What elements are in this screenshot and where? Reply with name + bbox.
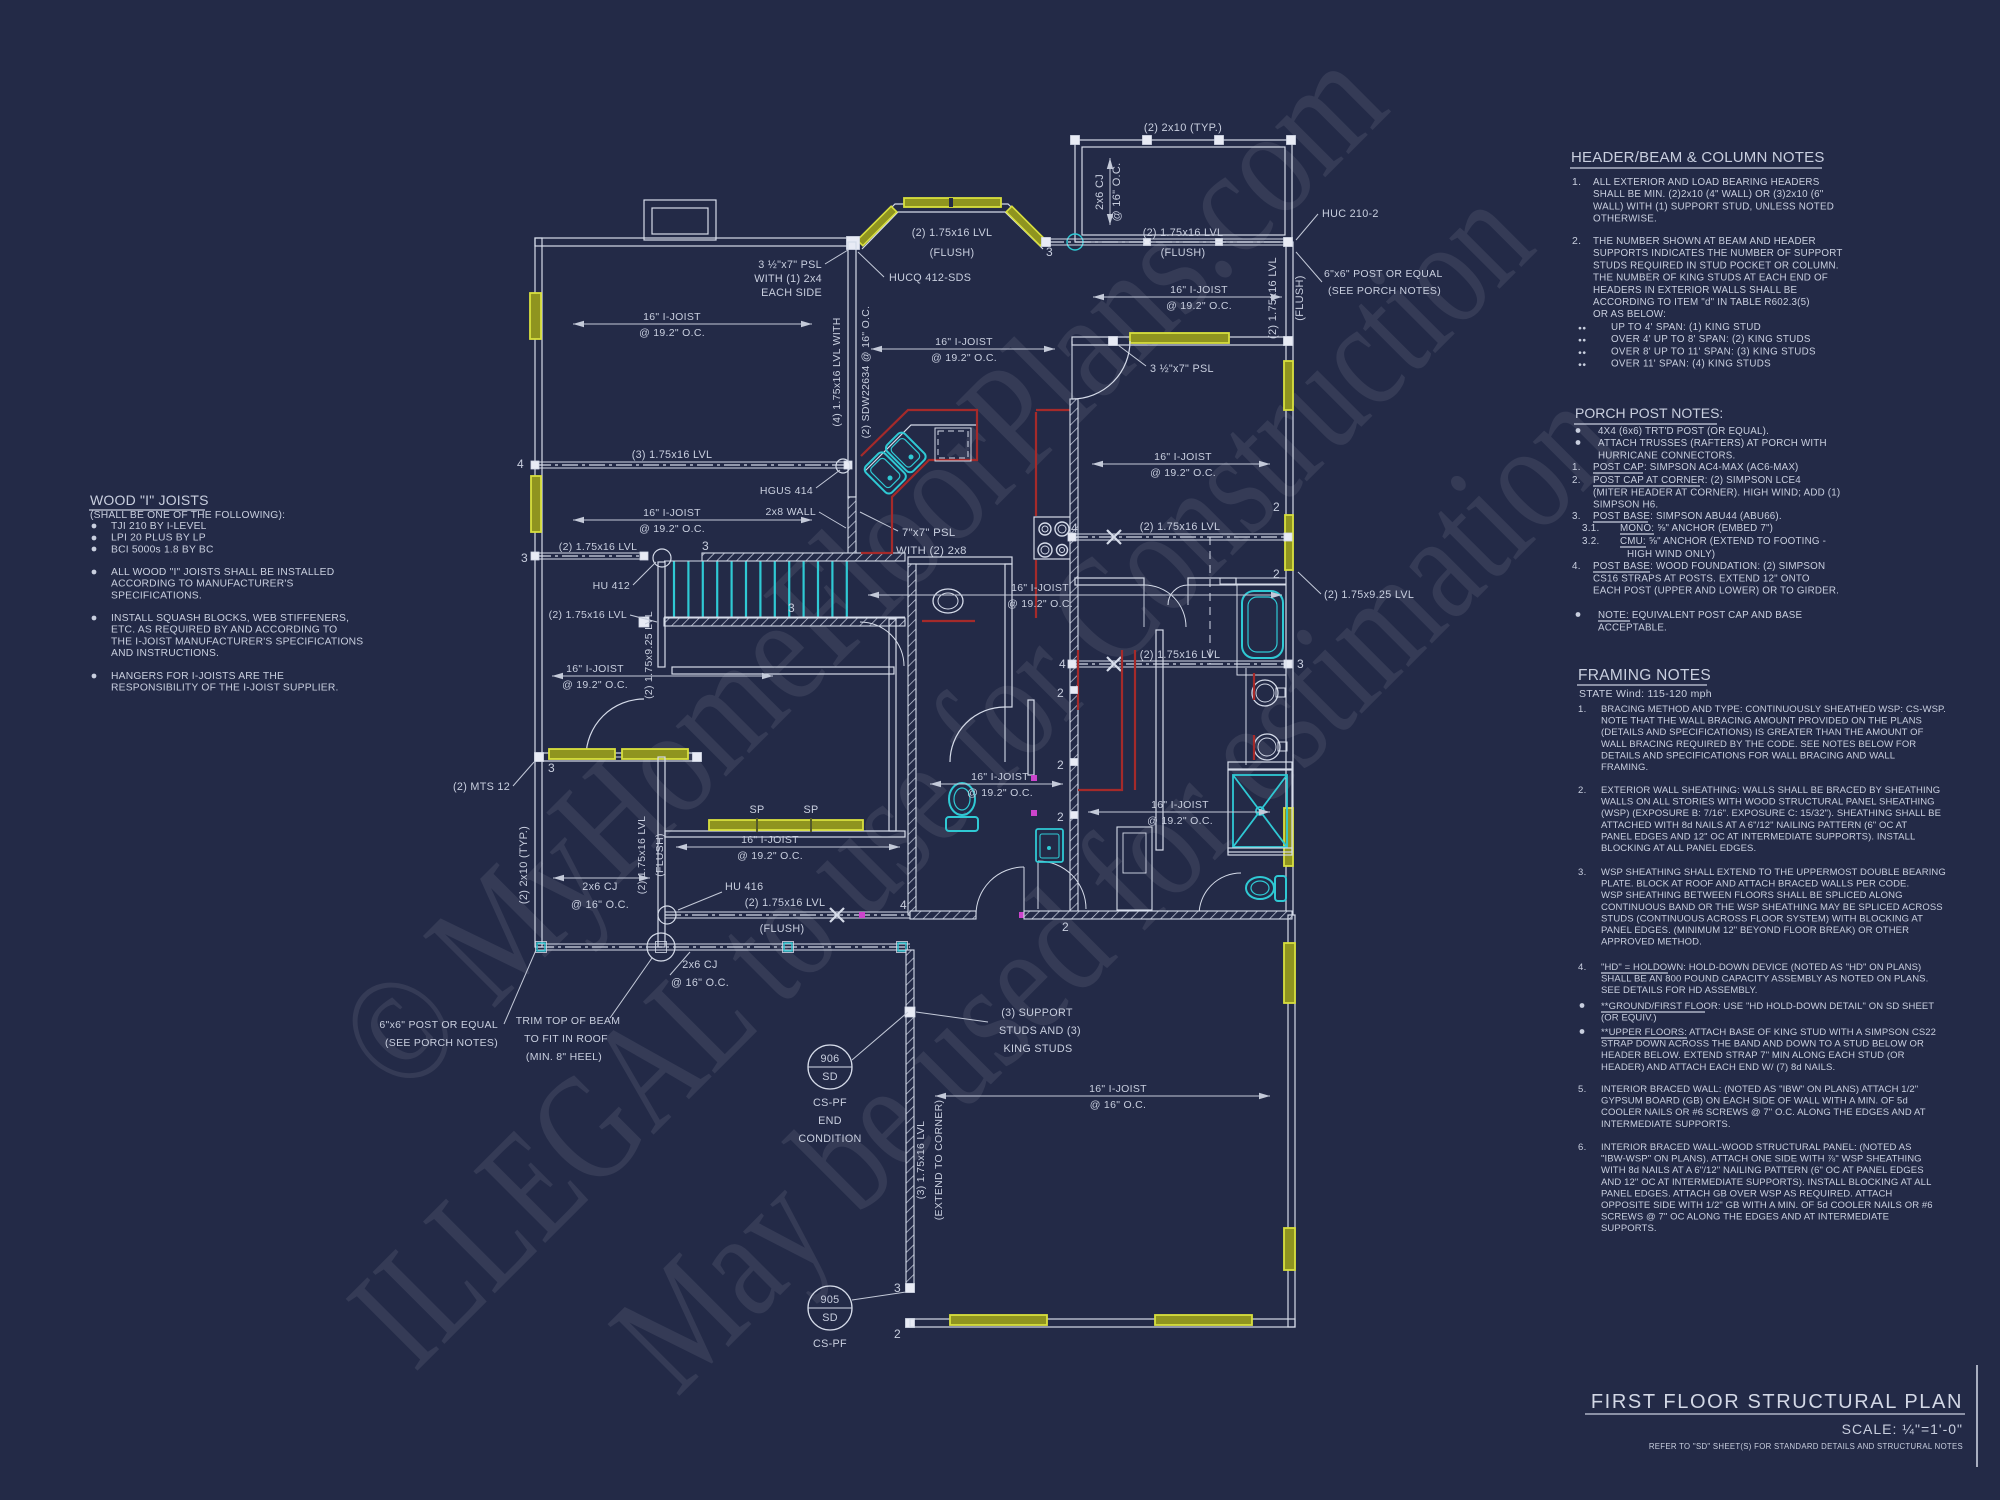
svg-text:3.2.: 3.2. — [1582, 536, 1600, 547]
svg-text:(3) 1.75x16 LVL: (3) 1.75x16 LVL — [632, 449, 713, 461]
svg-text:BRACING METHOD AND TYPE: CONTI: BRACING METHOD AND TYPE: CONTINUOUSLY SH… — [1601, 704, 1946, 715]
svg-text:HU 416: HU 416 — [725, 881, 763, 893]
svg-text:ATTACHED WITH 8d NAILS AT A 6": ATTACHED WITH 8d NAILS AT A 6"/12" NAILI… — [1601, 820, 1907, 831]
svg-text:HEADERS IN EXTERIOR WALLS SHAL: HEADERS IN EXTERIOR WALLS SHALL BE — [1593, 285, 1798, 296]
svg-text:3: 3 — [702, 539, 709, 553]
svg-text:(2) 1.75x16 LVL: (2) 1.75x16 LVL — [745, 897, 826, 909]
svg-text:2.: 2. — [1572, 235, 1581, 247]
svg-text:SP: SP — [749, 804, 764, 816]
svg-text:OTHERWISE.: OTHERWISE. — [1593, 214, 1657, 225]
svg-text:WSP SHEATHING SHALL EXTEND TO: WSP SHEATHING SHALL EXTEND TO THE UPPERM… — [1601, 867, 1946, 878]
svg-text:(3) 1.75x16 LVL: (3) 1.75x16 LVL — [915, 1121, 927, 1199]
svg-text:UP TO 4' SPAN: (1) KING STUD: UP TO 4' SPAN: (1) KING STUD — [1611, 322, 1761, 333]
svg-text:PANEL EDGES. (MINIMUM 12" BEYO: PANEL EDGES. (MINIMUM 12" BEYOND FLOOR B… — [1601, 925, 1909, 936]
svg-text:16" I-JOIST: 16" I-JOIST — [643, 507, 701, 519]
svg-text:TO FIT IN ROOF: TO FIT IN ROOF — [524, 1033, 608, 1045]
svg-text:OVER 11' SPAN: (4) KING STUDS: OVER 11' SPAN: (4) KING STUDS — [1611, 359, 1771, 370]
svg-text:HUC 210-2: HUC 210-2 — [1322, 208, 1379, 220]
svg-text:1.: 1. — [1572, 176, 1581, 188]
svg-text:(DETAILS AND SPECIFICATIONS) I: (DETAILS AND SPECIFICATIONS) IS GREATER … — [1601, 727, 1924, 738]
svg-text:4: 4 — [900, 898, 907, 912]
svg-text:16" I-JOIST: 16" I-JOIST — [1154, 451, 1212, 463]
svg-text:HURRICANE CONNECTORS.: HURRICANE CONNECTORS. — [1598, 450, 1735, 461]
svg-text:WALL) WITH (1) SUPPORT STUD, U: WALL) WITH (1) SUPPORT STUD, UNLESS NOTE… — [1593, 201, 1834, 212]
svg-text:(FLUSH): (FLUSH) — [1294, 275, 1306, 321]
svg-text:ATTACH TRUSSES (RAFTERS) AT PO: ATTACH TRUSSES (RAFTERS) AT PORCH WITH — [1598, 438, 1827, 449]
svg-text:(MIN. 8" HEEL): (MIN. 8" HEEL) — [526, 1051, 602, 1063]
svg-text:(SEE PORCH NOTES): (SEE PORCH NOTES) — [1328, 285, 1441, 297]
svg-text:STUDS (CONTINUOUS ACROSS FLOOR: STUDS (CONTINUOUS ACROSS FLOOR SYSTEM) W… — [1601, 913, 1923, 924]
svg-text:2.: 2. — [1578, 785, 1587, 796]
svg-text:HEADER BELOW. EXTEND STRAP 7": HEADER BELOW. EXTEND STRAP 7" MIN ALONG … — [1601, 1050, 1905, 1061]
svg-text:(2) 1.75x9.25 LVL: (2) 1.75x9.25 LVL — [643, 611, 655, 699]
svg-text:(2) 1.75x16 LVL: (2) 1.75x16 LVL — [1143, 227, 1224, 239]
svg-text:PORCH POST NOTES:: PORCH POST NOTES: — [1575, 405, 1723, 421]
svg-text:905: 905 — [821, 1294, 840, 1306]
svg-text:CS-PF: CS-PF — [813, 1097, 847, 1109]
svg-text:SCALE: ¼"=1'-0": SCALE: ¼"=1'-0" — [1842, 1421, 1963, 1437]
svg-text:4: 4 — [1059, 657, 1066, 671]
svg-text:(WSP) (EXPOSURE B: 7/16". EXPO: (WSP) (EXPOSURE B: 7/16". EXPOSURE C: 15… — [1601, 808, 1941, 819]
svg-text:SP: SP — [803, 804, 818, 816]
svg-text:HUCQ 412-SDS: HUCQ 412-SDS — [889, 272, 971, 284]
svg-text:4: 4 — [1071, 521, 1078, 535]
svg-text:AND INSTRUCTIONS.: AND INSTRUCTIONS. — [111, 648, 219, 659]
svg-text:●●: ●● — [1578, 349, 1586, 356]
svg-text:@ 16" O.C.: @ 16" O.C. — [571, 899, 629, 911]
svg-text:THE I-JOIST MANUFACTURER'S SPE: THE I-JOIST MANUFACTURER'S SPECIFICATION… — [111, 636, 363, 647]
svg-text:**GROUND/FIRST FLOOR: USE "HD: **GROUND/FIRST FLOOR: USE "HD HOLD-DOWN … — [1601, 1001, 1934, 1012]
svg-text:BLOCKING AT ALL PANEL EDGES.: BLOCKING AT ALL PANEL EDGES. — [1601, 843, 1756, 854]
svg-text:7"x7" PSL: 7"x7" PSL — [902, 527, 955, 539]
svg-text:3.: 3. — [1572, 511, 1581, 522]
svg-text:SPECIFICATIONS.: SPECIFICATIONS. — [111, 590, 202, 601]
svg-text:HIGH WIND ONLY): HIGH WIND ONLY) — [1627, 549, 1715, 560]
svg-text:HU 412: HU 412 — [593, 580, 630, 592]
svg-text:4X4 (6x6) TRT'D POST (OR EQUAL: 4X4 (6x6) TRT'D POST (OR EQUAL). — [1598, 426, 1769, 437]
svg-text:@ 19.2" O.C.: @ 19.2" O.C. — [1166, 300, 1232, 312]
svg-text:CONTINUOUS BAND OR THE WSP SHE: CONTINUOUS BAND OR THE WSP SHEATHING MAY… — [1601, 902, 1943, 913]
svg-text:16" I-JOIST: 16" I-JOIST — [741, 834, 799, 846]
svg-text:@ 19.2" O.C.: @ 19.2" O.C. — [967, 787, 1033, 799]
svg-text:906: 906 — [821, 1053, 840, 1065]
svg-text:WITH 8d NAILS AT A 6"/12" NAIL: WITH 8d NAILS AT A 6"/12" NAILING PATTER… — [1601, 1165, 1924, 1176]
svg-text:CS16 STRAPS AT POSTS. EXTEND: CS16 STRAPS AT POSTS. EXTEND 12" ONTO — [1593, 573, 1810, 584]
svg-text:REFER TO "SD" SHEET(S) FOR STA: REFER TO "SD" SHEET(S) FOR STANDARD DETA… — [1649, 1442, 1963, 1451]
svg-text:(SHALL BE ONE OF THE FOLLOWING: (SHALL BE ONE OF THE FOLLOWING): — [90, 510, 285, 521]
svg-text:4.: 4. — [1578, 962, 1587, 973]
svg-text:MONO: ⅝" ANCHOR (EMBED 7"): MONO: ⅝" ANCHOR (EMBED 7") — [1620, 523, 1773, 534]
svg-text:@ 19.2" O.C.: @ 19.2" O.C. — [1007, 598, 1073, 610]
svg-text:2: 2 — [894, 1327, 901, 1341]
svg-text:CONDITION: CONDITION — [798, 1133, 861, 1145]
svg-text:2: 2 — [1273, 500, 1280, 514]
svg-text:3: 3 — [548, 761, 555, 775]
svg-text:@ 16" O.C.: @ 16" O.C. — [671, 977, 729, 989]
svg-text:2: 2 — [1062, 920, 1069, 934]
svg-text:SEE DETAILS FOR HD ASSEMBLY.: SEE DETAILS FOR HD ASSEMBLY. — [1601, 985, 1757, 996]
svg-text:16" I-JOIST: 16" I-JOIST — [643, 311, 701, 323]
svg-text:PANEL EDGES. ATTACH GB OVER WS: PANEL EDGES. ATTACH GB OVER WSP AS REQUI… — [1601, 1188, 1892, 1199]
svg-text:TRIM TOP OF BEAM: TRIM TOP OF BEAM — [516, 1015, 621, 1027]
svg-text:3.: 3. — [1578, 867, 1587, 878]
svg-text:2.: 2. — [1572, 475, 1581, 486]
svg-text:POST CAP: SIMPSON AC4-MAX (AC6: POST CAP: SIMPSON AC4-MAX (AC6-MAX) — [1593, 462, 1799, 473]
svg-text:6.: 6. — [1578, 1142, 1587, 1153]
svg-text:WSP SHEATHING BETWEEN FLOORS S: WSP SHEATHING BETWEEN FLOORS SHALL BE SP… — [1601, 890, 1903, 901]
svg-text:2x8 WALL: 2x8 WALL — [766, 506, 816, 518]
svg-text:THE NUMBER SHOWN AT BEAM AND H: THE NUMBER SHOWN AT BEAM AND HEADER — [1593, 236, 1816, 247]
svg-text:2x6 CJ: 2x6 CJ — [682, 959, 717, 971]
svg-text:WITH (2) 2x8: WITH (2) 2x8 — [896, 545, 967, 557]
svg-text:(2) 1.75x16 LVL: (2) 1.75x16 LVL — [912, 227, 993, 239]
svg-text:**UPPER FLOORS: ATTACH BASE OF: **UPPER FLOORS: ATTACH BASE OF KING STUD… — [1601, 1027, 1936, 1038]
svg-text:3: 3 — [521, 551, 528, 565]
svg-text:1.: 1. — [1572, 462, 1581, 473]
svg-text:STUDS REQUIRED IN STUD POCKET: STUDS REQUIRED IN STUD POCKET OR COLUMN. — [1593, 260, 1839, 271]
svg-text:(2) 2x10 (TYP.): (2) 2x10 (TYP.) — [1144, 122, 1222, 134]
svg-text:POST BASE: SIMPSON ABU44 (ABU6: POST BASE: SIMPSON ABU44 (ABU66). — [1593, 511, 1782, 522]
svg-text:BCI 5000s 1.8 BY BC: BCI 5000s 1.8 BY BC — [111, 544, 214, 555]
svg-text:STRAP DOWN ACROSS THE BAND AND: STRAP DOWN ACROSS THE BAND AND DOWN TO A… — [1601, 1039, 1924, 1050]
svg-text:(2) 1.75x9.25 LVL: (2) 1.75x9.25 LVL — [1324, 589, 1414, 601]
svg-text:APPROVED METHOD.: APPROVED METHOD. — [1601, 937, 1702, 948]
svg-text:LPI 20 PLUS BY LP: LPI 20 PLUS BY LP — [111, 533, 206, 544]
svg-text:●●: ●● — [1578, 337, 1586, 344]
svg-text:3 ½"x7" PSL: 3 ½"x7" PSL — [1150, 363, 1214, 375]
svg-text:SD: SD — [822, 1071, 838, 1083]
svg-text:KING STUDS: KING STUDS — [1004, 1043, 1073, 1055]
svg-text:PLATE. BLOCK AT ROOF AND ATTAC: PLATE. BLOCK AT ROOF AND ATTACH BRACED W… — [1601, 879, 1909, 890]
svg-text:SD: SD — [822, 1312, 838, 1324]
svg-text:4.: 4. — [1572, 561, 1581, 572]
svg-text:OVER 4' UP TO 8' SPAN: (2) KIN: OVER 4' UP TO 8' SPAN: (2) KING STUDS — [1611, 334, 1811, 345]
svg-text:OR AS BELOW:: OR AS BELOW: — [1593, 309, 1666, 320]
svg-text:@ 19.2" O.C.: @ 19.2" O.C. — [931, 352, 997, 364]
svg-text:POST BASE: WOOD FOUNDATION: (2: POST BASE: WOOD FOUNDATION: (2) SIMPSON — [1593, 561, 1825, 572]
svg-text:●●: ●● — [1578, 362, 1586, 369]
svg-text:EXTERIOR WALL SHEATHING: WALLS: EXTERIOR WALL SHEATHING: WALLS SHALL BE … — [1601, 785, 1940, 796]
svg-text:CS-PF: CS-PF — [813, 1338, 847, 1350]
svg-text:2x6 CJ: 2x6 CJ — [1094, 174, 1106, 210]
svg-text:CMU: ⅝" ANCHOR (EXTEND TO FOOT: CMU: ⅝" ANCHOR (EXTEND TO FOOTING - — [1620, 536, 1826, 547]
svg-text:END: END — [818, 1115, 842, 1127]
svg-text:(MITER HEADER AT CORNER). HIG: (MITER HEADER AT CORNER). HIGH WIND; ADD… — [1593, 487, 1840, 498]
svg-text:@ 19.2" O.C.: @ 19.2" O.C. — [639, 327, 705, 339]
svg-text:3: 3 — [1297, 657, 1304, 671]
svg-text:EACH POST (UPPER AND LOWER) OR: EACH POST (UPPER AND LOWER) OR TO GIRDER… — [1593, 586, 1839, 597]
svg-text:(2) 2x10 (TYP.): (2) 2x10 (TYP.) — [518, 826, 530, 904]
svg-text:(FLUSH): (FLUSH) — [930, 247, 975, 259]
svg-text:INTERIOR BRACED WALL-WOOD STRU: INTERIOR BRACED WALL-WOOD STRUCTURAL PAN… — [1601, 1142, 1912, 1153]
svg-text:@ 19.2" O.C.: @ 19.2" O.C. — [562, 679, 628, 691]
svg-text:INTERMEDIATE SUPPORTS.: INTERMEDIATE SUPPORTS. — [1601, 1119, 1731, 1130]
svg-text:HEADER/BEAM & COLUMN NOTES: HEADER/BEAM & COLUMN NOTES — [1571, 149, 1825, 166]
svg-text:(FLUSH): (FLUSH) — [1161, 247, 1206, 259]
svg-text:3.1.: 3.1. — [1582, 523, 1600, 534]
svg-text:"IBW-WSP" ON PLANS). ATTACH ON: "IBW-WSP" ON PLANS). ATTACH ONE SIDE WIT… — [1601, 1154, 1922, 1165]
svg-text:3: 3 — [788, 601, 795, 615]
svg-text:@ 16" O.C.: @ 16" O.C. — [1090, 1099, 1146, 1111]
svg-text:POST CAP AT CORNER: (2) SIMPSO: POST CAP AT CORNER: (2) SIMPSON LCE4 — [1593, 475, 1801, 486]
svg-text:5.: 5. — [1578, 1084, 1587, 1095]
svg-text:SHALL BE AN 800 POUND CAPACITY: SHALL BE AN 800 POUND CAPACITY ASSEMBLY … — [1601, 974, 1928, 985]
svg-text:16" I-JOIST: 16" I-JOIST — [566, 663, 624, 675]
svg-text:@ 19.2" O.C.: @ 19.2" O.C. — [1147, 815, 1213, 827]
svg-text:(3) SUPPORT: (3) SUPPORT — [1001, 1007, 1073, 1019]
svg-text:(4) 1.75x16 LVL WITH: (4) 1.75x16 LVL WITH — [831, 317, 843, 426]
svg-text:16" I-JOIST: 16" I-JOIST — [1170, 284, 1228, 296]
svg-text:THE NUMBER OF KING STUDS AT EA: THE NUMBER OF KING STUDS AT EACH END OF — [1593, 273, 1828, 284]
svg-text:RESPONSIBILITY OF THE I-JOIST: RESPONSIBILITY OF THE I-JOIST SUPPLIER. — [111, 683, 339, 694]
svg-text:FRAMING.: FRAMING. — [1601, 762, 1648, 773]
svg-text:(2) 1.75x16 LVL: (2) 1.75x16 LVL — [1140, 521, 1221, 533]
svg-text:(FLUSH): (FLUSH) — [760, 923, 805, 935]
svg-text:(2) 1.75x16 LVL: (2) 1.75x16 LVL — [636, 816, 648, 894]
svg-text:(SEE PORCH NOTES): (SEE PORCH NOTES) — [385, 1037, 498, 1049]
svg-text:PANEL EDGES AND 12" OC AT INTE: PANEL EDGES AND 12" OC AT INTERMEDIATE S… — [1601, 831, 1915, 842]
svg-text:(2) 1.75x16 LVL: (2) 1.75x16 LVL — [1140, 649, 1221, 661]
svg-text:3: 3 — [1046, 245, 1053, 259]
svg-text:EACH SIDE: EACH SIDE — [761, 287, 822, 299]
svg-text:6"x6" POST OR EQUAL: 6"x6" POST OR EQUAL — [379, 1019, 498, 1031]
svg-text:STUDS AND (3): STUDS AND (3) — [999, 1025, 1081, 1037]
svg-text:●●: ●● — [1578, 325, 1586, 332]
svg-text:16" I-JOIST: 16" I-JOIST — [971, 771, 1029, 783]
svg-text:INSTALL SQUASH BLOCKS, WEB STI: INSTALL SQUASH BLOCKS, WEB STIFFENERS, — [111, 613, 349, 624]
svg-text:GYPSUM BOARD (GB) ON EACH SIDE: GYPSUM BOARD (GB) ON EACH SIDE OF WALL W… — [1601, 1096, 1908, 1107]
svg-text:(2) SDW22634 @ 16" O.C.: (2) SDW22634 @ 16" O.C. — [860, 306, 872, 439]
svg-text:WALLS ON ALL STORIES WITH WOOD: WALLS ON ALL STORIES WITH WOOD STRUCTURA… — [1601, 797, 1935, 808]
svg-text:@ 16" O.C.: @ 16" O.C. — [1111, 162, 1123, 221]
svg-text:HANGERS FOR I-JOISTS ARE THE: HANGERS FOR I-JOISTS ARE THE — [111, 671, 284, 682]
svg-text:SHALL BE MIN. (2)2x10 (4" WALL: SHALL BE MIN. (2)2x10 (4" WALL) OR (3)2x… — [1593, 189, 1824, 200]
svg-text:WALL BRACING REQUIRED BY THE C: WALL BRACING REQUIRED BY THE CODE. SEE N… — [1601, 739, 1916, 750]
svg-text:NOTE: EQUIVALENT POST CAP AND: NOTE: EQUIVALENT POST CAP AND BASE — [1598, 610, 1803, 621]
svg-text:@ 19.2" O.C.: @ 19.2" O.C. — [737, 850, 803, 862]
svg-text:SIMPSON H6.: SIMPSON H6. — [1593, 500, 1658, 511]
svg-text:(2) MTS 12: (2) MTS 12 — [453, 781, 510, 793]
svg-text:TJI 210 BY I-LEVEL: TJI 210 BY I-LEVEL — [111, 521, 207, 532]
svg-text:16" I-JOIST: 16" I-JOIST — [1151, 799, 1209, 811]
svg-text:2: 2 — [1057, 758, 1064, 772]
svg-text:16" I-JOIST: 16" I-JOIST — [1089, 1083, 1147, 1095]
svg-text:WOOD "I" JOISTS: WOOD "I" JOISTS — [90, 492, 209, 508]
svg-text:16" I-JOIST: 16" I-JOIST — [935, 336, 993, 348]
svg-text:(OR EQUIV.): (OR EQUIV.) — [1601, 1013, 1657, 1024]
svg-text:ACCEPTABLE.: ACCEPTABLE. — [1598, 622, 1667, 633]
svg-text:HGUS 414: HGUS 414 — [760, 485, 813, 497]
svg-text:ALL EXTERIOR AND LOAD BEARING: ALL EXTERIOR AND LOAD BEARING HEADERS — [1593, 177, 1820, 188]
svg-text:OVER 8' UP TO 11' SPAN: (3) KI: OVER 8' UP TO 11' SPAN: (3) KING STUDS — [1611, 346, 1816, 357]
svg-text:HEADER) AND ATTACH EACH END W/: HEADER) AND ATTACH EACH END W/ (7) 8d NA… — [1601, 1062, 1835, 1073]
svg-text:COOLER NAILS OR #6 SCREWS @ 7": COOLER NAILS OR #6 SCREWS @ 7" O.C. ALON… — [1601, 1107, 1926, 1118]
svg-text:(FLUSH): (FLUSH) — [654, 833, 666, 877]
svg-text:2: 2 — [1057, 686, 1064, 700]
svg-text:FIRST FLOOR STRUCTURAL PLAN: FIRST FLOOR STRUCTURAL PLAN — [1591, 1391, 1963, 1413]
svg-text:NOTE THAT THE WALL BRACING AMO: NOTE THAT THE WALL BRACING AMOUNT PROVID… — [1601, 716, 1922, 727]
svg-text:SUPPORTS.: SUPPORTS. — [1601, 1223, 1657, 1234]
svg-text:(2) 1.75x16 LVL: (2) 1.75x16 LVL — [559, 541, 637, 553]
svg-text:3 ½"x7" PSL: 3 ½"x7" PSL — [758, 259, 822, 271]
svg-text:ALL WOOD "I" JOISTS SHALL BE I: ALL WOOD "I" JOISTS SHALL BE INSTALLED — [111, 567, 334, 578]
svg-text:ETC. AS REQUIRED BY AND ACCORD: ETC. AS REQUIRED BY AND ACCORDING TO — [111, 625, 337, 636]
svg-text:@ 19.2" O.C.: @ 19.2" O.C. — [639, 523, 705, 535]
svg-text:ACCORDING TO ITEM "d" IN TABLE: ACCORDING TO ITEM "d" IN TABLE R602.3(5) — [1593, 297, 1810, 308]
svg-text:2x6 CJ: 2x6 CJ — [582, 881, 617, 893]
svg-text:(2) 1.75x16 LVL: (2) 1.75x16 LVL — [549, 609, 627, 621]
svg-text:SCREWS @ 7" OC ALONG THE EDGES: SCREWS @ 7" OC ALONG THE EDGES AND AT IN… — [1601, 1212, 1889, 1223]
svg-text:ACCORDING TO MANUFACTURER'S: ACCORDING TO MANUFACTURER'S — [111, 579, 294, 590]
svg-text:2: 2 — [1057, 810, 1064, 824]
svg-text:STATE Wind: 115-120 mph: STATE Wind: 115-120 mph — [1579, 688, 1712, 700]
svg-text:AND 12" OC AT INTERMEDIATE SUP: AND 12" OC AT INTERMEDIATE SUPPORTS). IN… — [1601, 1177, 1931, 1188]
svg-text:(EXTEND TO CORNER): (EXTEND TO CORNER) — [933, 1100, 945, 1221]
svg-text:INTERIOR BRACED WALL: (NOTED A: INTERIOR BRACED WALL: (NOTED AS "IBW" ON… — [1601, 1084, 1918, 1095]
svg-text:@ 19.2" O.C.: @ 19.2" O.C. — [1150, 467, 1216, 479]
svg-text:"HD" = HOLDOWN: HOLD-DOWN DEVI: "HD" = HOLDOWN: HOLD-DOWN DEVICE (NOTED … — [1601, 962, 1921, 973]
svg-text:1.: 1. — [1578, 704, 1587, 715]
svg-text:SUPPORTS INDICATES THE NUMBER: SUPPORTS INDICATES THE NUMBER OF SUPPORT — [1593, 248, 1843, 259]
svg-text:FRAMING NOTES: FRAMING NOTES — [1578, 667, 1711, 684]
svg-text:OPPOSITE SIDE WITH 1/2" GB WIT: OPPOSITE SIDE WITH 1/2" GB WITH A MIN. O… — [1601, 1200, 1933, 1211]
svg-text:6"x6" POST OR EQUAL: 6"x6" POST OR EQUAL — [1324, 268, 1443, 280]
svg-text:16" I-JOIST: 16" I-JOIST — [1011, 582, 1069, 594]
svg-text:WITH (1) 2x4: WITH (1) 2x4 — [754, 273, 822, 285]
svg-text:2: 2 — [1273, 567, 1280, 581]
svg-text:DETAILS AND SPECIFICATIONS FOR: DETAILS AND SPECIFICATIONS FOR WALL BRAC… — [1601, 750, 1895, 761]
svg-text:4: 4 — [517, 457, 524, 471]
